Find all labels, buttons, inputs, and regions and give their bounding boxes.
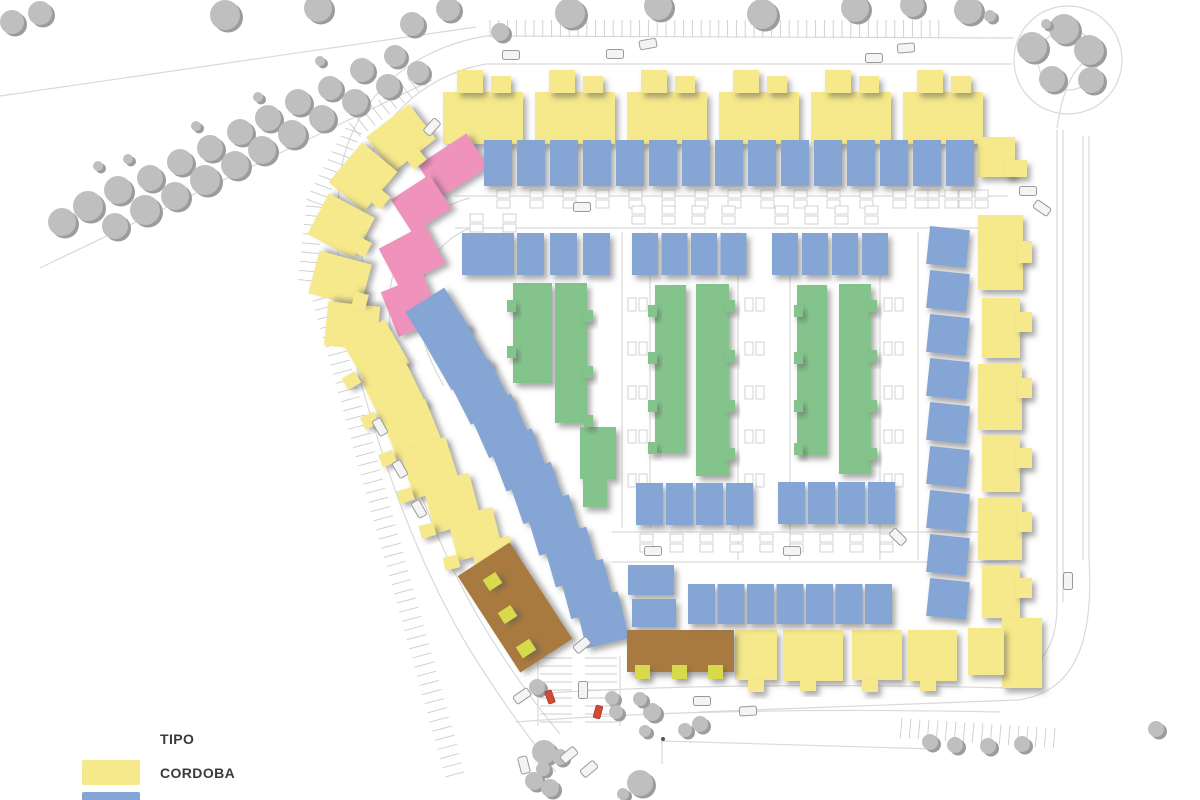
car — [579, 682, 588, 699]
plot-marker — [639, 342, 647, 355]
building-cordoba-house — [859, 76, 879, 93]
car — [1020, 187, 1037, 196]
plot-marker — [728, 190, 741, 198]
plot-marker — [884, 342, 892, 355]
building-granada-house — [696, 483, 723, 525]
building-green-rowhouse — [507, 300, 516, 312]
car — [411, 499, 427, 518]
tree — [900, 0, 927, 20]
parking-stall — [332, 152, 349, 158]
building-green-rowhouse — [648, 400, 657, 412]
building-lime-accent — [672, 665, 687, 679]
plot-marker — [530, 200, 543, 208]
building-cordoba-house — [767, 76, 787, 93]
building-granada-house — [517, 233, 544, 275]
plot-marker — [775, 216, 788, 224]
building-granada-house — [847, 140, 875, 186]
building-green-rowhouse — [507, 346, 516, 358]
car — [1064, 573, 1073, 590]
tree — [1074, 35, 1107, 68]
tree — [376, 74, 403, 101]
car — [739, 706, 756, 716]
tree — [491, 23, 512, 44]
plot-marker — [975, 200, 988, 208]
plot-marker — [692, 206, 705, 214]
plot-marker — [893, 190, 906, 198]
building-granada-house — [666, 483, 693, 525]
tree — [350, 58, 377, 85]
plot-marker — [945, 190, 958, 198]
tree — [1148, 721, 1167, 740]
building-granada-house — [926, 490, 970, 532]
building-cordoba-house — [1018, 241, 1032, 263]
building-granada-house — [688, 584, 715, 624]
parking-stall — [300, 261, 318, 263]
plot-marker — [884, 386, 892, 399]
plot-marker — [563, 190, 576, 198]
road-line — [516, 710, 1000, 722]
legend-label-cordoba: CORDOBA — [160, 765, 235, 781]
plot-marker — [756, 430, 764, 443]
building-cordoba-house — [1018, 512, 1032, 532]
plot-marker — [794, 190, 807, 198]
tree — [93, 161, 106, 174]
building-green-rowhouse — [868, 300, 877, 312]
building-cordoba-house — [862, 680, 878, 692]
plot-marker — [865, 216, 878, 224]
parking-stall — [371, 106, 382, 120]
parking-stall — [387, 561, 406, 566]
legend-item-cordoba: CORDOBA — [82, 760, 235, 785]
building-green-rowhouse — [696, 284, 729, 476]
tree — [644, 0, 675, 23]
building-granada-house — [806, 584, 833, 624]
parking-stall — [422, 689, 441, 694]
building-cordoba-house — [1016, 448, 1032, 468]
legend-item-granada: GRANADA — [82, 792, 235, 800]
building-cordoba-house — [1016, 312, 1032, 332]
building-granada-house — [926, 402, 970, 444]
tree — [190, 165, 223, 198]
plot-marker — [596, 200, 609, 208]
parking-stall — [1035, 727, 1037, 747]
plot-marker — [700, 534, 713, 542]
parking-stall — [341, 397, 360, 402]
building-cordoba-house — [783, 630, 843, 681]
building-green-rowhouse — [839, 284, 871, 474]
tree — [639, 725, 654, 740]
building-cordoba-house — [457, 70, 483, 93]
parking-stall — [364, 479, 383, 484]
building-granada-house — [926, 270, 970, 312]
building-granada-house — [462, 233, 514, 275]
building-cordoba-house — [978, 364, 1022, 430]
plot-marker — [628, 474, 636, 487]
building-cordoba-house — [982, 436, 1020, 492]
building-granada-house — [636, 483, 663, 525]
parking-stall — [389, 570, 408, 575]
tree — [123, 154, 136, 167]
plot-marker — [895, 298, 903, 311]
plot-marker — [761, 200, 774, 208]
plot-marker — [959, 200, 972, 208]
parking-stall — [306, 199, 323, 205]
tree — [609, 705, 626, 722]
tree — [210, 0, 243, 33]
building-cordoba-house — [982, 566, 1020, 618]
tree — [285, 89, 314, 118]
plot-marker — [632, 206, 645, 214]
tree — [1039, 66, 1068, 95]
car — [1032, 199, 1051, 216]
building-cordoba-house — [1018, 378, 1032, 398]
building-green-rowhouse — [726, 400, 735, 412]
parking-stall — [343, 406, 362, 411]
parking-stall — [432, 726, 451, 731]
tree — [954, 0, 985, 27]
parking-stall — [909, 719, 911, 739]
plot-marker — [745, 386, 753, 399]
plot-marker — [745, 430, 753, 443]
parking-stall — [427, 708, 446, 713]
building-cordoba-house — [852, 630, 902, 680]
tree — [104, 176, 135, 207]
parking-stall — [392, 580, 411, 585]
tree — [400, 12, 427, 39]
plot-marker — [503, 224, 516, 232]
tree — [633, 692, 650, 709]
building-green-rowhouse — [555, 283, 587, 423]
plot-marker — [865, 206, 878, 214]
plot-marker — [640, 534, 653, 542]
building-granada-house — [616, 140, 644, 186]
building-green-rowhouse — [580, 427, 616, 479]
building-cordoba-house — [978, 498, 1022, 560]
building-cordoba-house — [800, 681, 816, 691]
road-line — [662, 741, 935, 764]
building-cordoba-house — [908, 630, 957, 681]
car — [580, 760, 599, 778]
tree — [197, 135, 226, 164]
building-granada-house — [718, 584, 745, 624]
building-cordoba-house — [825, 70, 851, 93]
building-granada-house — [484, 140, 512, 186]
building-green-rowhouse — [726, 300, 735, 312]
parking-stall — [356, 452, 375, 457]
building-granada-house — [649, 140, 677, 186]
tree — [1078, 67, 1107, 96]
building-green-rowhouse — [794, 305, 803, 317]
parking-stall — [417, 671, 436, 676]
building-cordoba-house — [443, 92, 523, 144]
building-cordoba-house — [951, 76, 971, 93]
parking-stall — [333, 369, 352, 374]
tree — [191, 121, 204, 134]
building-granada-house — [778, 482, 805, 524]
tree — [48, 208, 79, 239]
building-granada-house — [832, 233, 858, 275]
building-cordoba-house — [675, 76, 695, 93]
legend: TIPO CORDOBA GRANADA — [82, 731, 235, 800]
building-granada-house — [865, 584, 892, 624]
legend-swatch-cordoba — [82, 760, 140, 785]
plot-marker — [820, 534, 833, 542]
building-green-rowhouse — [648, 442, 657, 454]
car — [503, 51, 520, 60]
plot-marker — [639, 298, 647, 311]
building-green-rowhouse — [648, 352, 657, 364]
tree — [436, 0, 463, 24]
building-cordoba-house — [733, 70, 759, 93]
building-granada-house — [926, 578, 970, 620]
parking-stall — [399, 607, 418, 612]
plot-marker — [662, 206, 675, 214]
building-green-rowhouse — [794, 400, 803, 412]
plot-marker — [884, 430, 892, 443]
tree — [747, 0, 780, 32]
building-green-rowhouse — [868, 350, 877, 362]
parking-stall — [357, 117, 368, 131]
plot-marker — [670, 544, 683, 552]
parking-stall — [999, 725, 1001, 745]
plot-marker — [895, 386, 903, 399]
parking-stall — [435, 735, 454, 740]
plot-marker — [497, 190, 510, 198]
building-granada-house — [628, 565, 674, 595]
parking-stall — [443, 763, 462, 768]
parking-stall — [409, 644, 428, 649]
parking-stall — [404, 625, 423, 630]
plot-marker — [628, 342, 636, 355]
plot-marker — [639, 430, 647, 443]
plot-marker — [805, 216, 818, 224]
tree — [342, 89, 371, 118]
parking-stall — [440, 753, 459, 758]
building-lime-accent — [635, 665, 650, 679]
plot-marker — [893, 200, 906, 208]
parking-stall — [397, 598, 416, 603]
plot-marker — [850, 534, 863, 542]
tree — [984, 10, 999, 25]
tree — [221, 151, 252, 182]
parking-stall — [900, 718, 902, 738]
road-line — [486, 36, 1014, 38]
parking-stall — [336, 144, 353, 150]
building-cordoba-house — [549, 70, 575, 93]
plot-marker — [827, 190, 840, 198]
building-granada-house — [632, 233, 658, 275]
plot-marker — [639, 386, 647, 399]
plot-marker — [628, 386, 636, 399]
parking-stall — [361, 470, 380, 475]
plot-marker — [835, 206, 848, 214]
building-green-rowhouse — [726, 350, 735, 362]
building-granada-house — [747, 584, 774, 624]
tree — [980, 738, 999, 757]
car — [866, 54, 883, 63]
building-green-rowhouse — [583, 479, 607, 507]
boundary-dot — [661, 737, 665, 741]
building-granada-house — [550, 140, 578, 186]
plot-marker — [820, 544, 833, 552]
tree — [304, 0, 335, 25]
tree — [28, 1, 55, 28]
parking-stall — [402, 616, 421, 621]
parking-stall — [358, 461, 377, 466]
parking-stall — [328, 351, 347, 356]
plot-marker — [497, 200, 510, 208]
building-granada-house — [721, 233, 747, 275]
plot-marker — [503, 214, 516, 222]
plot-marker — [756, 474, 764, 487]
building-green-rowhouse — [868, 448, 877, 460]
plot-marker — [628, 298, 636, 311]
building-cordoba-house — [641, 70, 667, 93]
car — [784, 547, 801, 556]
plot-marker — [628, 430, 636, 443]
building-cordoba-house — [1002, 618, 1042, 688]
plot-marker — [730, 534, 743, 542]
building-granada-house — [772, 233, 798, 275]
parking-stall — [1053, 728, 1055, 748]
tree — [309, 105, 338, 134]
plot-marker — [760, 544, 773, 552]
building-granada-house — [926, 226, 970, 268]
parking-stall — [351, 433, 370, 438]
building-granada-house — [868, 482, 895, 524]
tree — [248, 136, 279, 167]
plot-marker — [662, 216, 675, 224]
tree — [102, 213, 131, 242]
building-granada-house — [682, 140, 710, 186]
building-green-rowhouse — [794, 352, 803, 364]
plot-marker — [722, 206, 735, 214]
parking-stall — [407, 635, 426, 640]
building-granada-house — [583, 140, 611, 186]
car — [897, 43, 915, 53]
car — [607, 50, 624, 59]
building-cordoba-house — [443, 554, 461, 570]
building-granada-house — [946, 140, 974, 186]
plot-marker — [915, 190, 928, 198]
parking-stall — [353, 442, 372, 447]
plot-marker — [895, 474, 903, 487]
parking-stall — [972, 723, 974, 743]
building-granada-house — [583, 233, 610, 275]
building-granada-house — [691, 233, 717, 275]
parking-stall — [430, 717, 449, 722]
tree — [73, 191, 106, 224]
building-granada-house — [550, 233, 577, 275]
tree — [0, 10, 27, 37]
building-cordoba-house — [811, 92, 891, 144]
building-granada-house — [926, 446, 970, 488]
plot-marker — [756, 386, 764, 399]
parking-stall — [420, 680, 439, 685]
tree — [318, 76, 345, 103]
parking-stall — [301, 252, 319, 254]
building-granada-house — [926, 534, 970, 576]
tree — [137, 165, 166, 194]
building-granada-house — [777, 584, 804, 624]
building-granada-house — [802, 233, 828, 275]
tree — [1017, 32, 1050, 65]
site-plan-drawing — [0, 0, 1200, 800]
legend-swatch-granada — [82, 792, 140, 800]
building-pink-house — [379, 224, 446, 287]
plot-marker — [530, 190, 543, 198]
building-cordoba-house — [735, 630, 777, 680]
parking-stall — [379, 100, 390, 114]
plot-marker — [915, 200, 928, 208]
plot-marker — [730, 544, 743, 552]
building-green-rowhouse — [868, 400, 877, 412]
plot-marker — [670, 534, 683, 542]
plot-marker — [632, 216, 645, 224]
parking-stall — [381, 543, 400, 548]
building-granada-house — [862, 233, 888, 275]
plot-marker — [805, 206, 818, 214]
plot-marker — [775, 206, 788, 214]
building-granada-house — [913, 140, 941, 186]
building-granada-house — [715, 140, 743, 186]
car — [512, 687, 531, 704]
building-granada-house — [726, 483, 753, 525]
parking-stall — [425, 699, 444, 704]
tree — [253, 92, 266, 105]
plot-marker — [700, 544, 713, 552]
parking-stall — [371, 506, 390, 511]
plot-marker — [880, 544, 893, 552]
plot-marker — [756, 342, 764, 355]
building-cordoba-house — [627, 92, 707, 144]
plot-marker — [959, 190, 972, 198]
plot-marker — [895, 342, 903, 355]
plot-marker — [745, 342, 753, 355]
plot-marker — [761, 190, 774, 198]
building-granada-house — [517, 140, 545, 186]
building-cordoba-house — [982, 298, 1020, 358]
plot-marker — [835, 216, 848, 224]
plot-marker — [884, 298, 892, 311]
red-vehicle — [544, 690, 555, 705]
building-cordoba-house — [920, 681, 936, 691]
parking-stall — [306, 206, 324, 208]
building-green-rowhouse — [794, 443, 803, 455]
building-green-rowhouse — [726, 448, 735, 460]
red-vehicle — [593, 705, 603, 719]
plot-marker — [850, 544, 863, 552]
parking-stall — [366, 488, 385, 493]
building-green-rowhouse — [584, 415, 593, 427]
parking-stall — [1008, 725, 1010, 745]
building-green-rowhouse — [584, 366, 593, 378]
building-granada-house — [781, 140, 809, 186]
building-green-rowhouse — [584, 310, 593, 322]
parking-stall — [918, 719, 920, 739]
building-granada-house — [926, 358, 970, 400]
parking-stall — [394, 589, 413, 594]
building-cordoba-house — [583, 76, 603, 93]
building-granada-house — [814, 140, 842, 186]
building-cordoba-house — [968, 628, 1004, 675]
plot-marker — [756, 298, 764, 311]
parking-stall — [415, 662, 434, 667]
building-green-rowhouse — [655, 285, 686, 453]
building-granada-house — [926, 314, 970, 356]
building-green-rowhouse — [513, 283, 552, 383]
plot-marker — [760, 534, 773, 542]
